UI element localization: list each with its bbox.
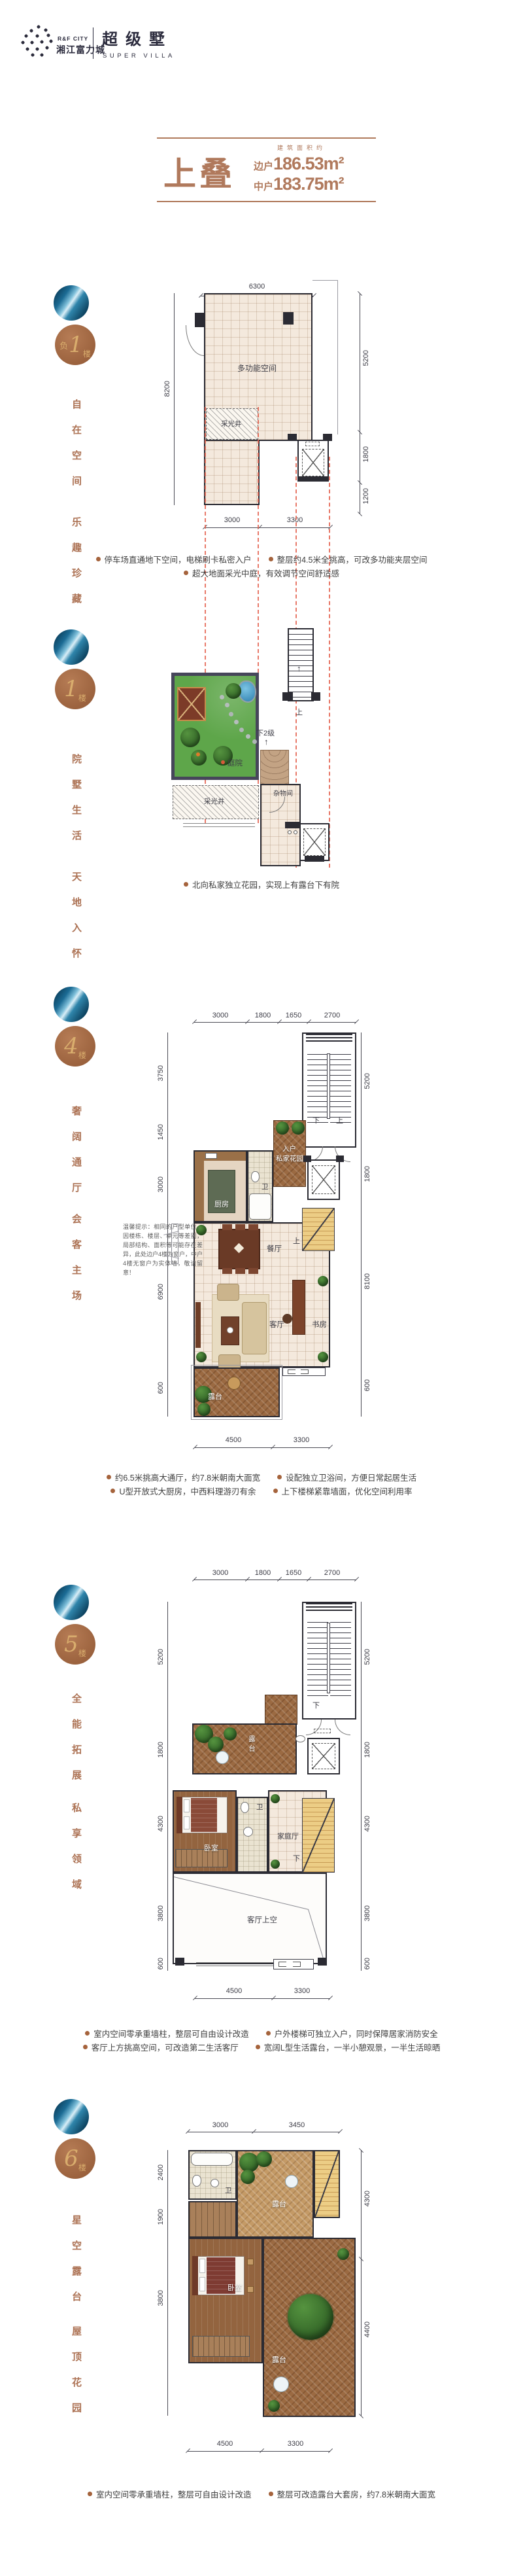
bullet-dot-icon [85, 2031, 90, 2036]
wall-pillar [336, 1156, 344, 1162]
washbasin [211, 2179, 219, 2187]
terrace-plant [256, 2151, 272, 2167]
tv-console [195, 1302, 201, 1348]
wall-pillar [311, 692, 320, 701]
dim-line [194, 1579, 356, 1580]
wardrobe [192, 2336, 250, 2357]
bed-pillow [184, 1799, 190, 1812]
corner-plant [318, 1352, 328, 1362]
dim-line [195, 1998, 330, 1999]
garden-pavilion [177, 687, 206, 721]
feature-bullets-row: 北向私家独立花园，实现上有露台下有院 [0, 878, 523, 891]
feature-bullets-row: 客厅上方挑高空间，可改造第二生活客厅 宽阔L型生活露台，一半小憩观景，一半生活晾… [0, 2041, 523, 2053]
dim-label: 6300 [249, 283, 265, 291]
bed-pillow [199, 2259, 205, 2273]
dim-tick [328, 1996, 333, 2000]
dim-label: 3300 [287, 516, 303, 524]
bed-blanket [191, 1798, 217, 1832]
bullet-text: 宽阔L型生活露台，一半小憩观景，一半生活晾晒 [264, 2041, 440, 2053]
garden-plant [292, 1121, 305, 1135]
dim-label: 3000 [212, 1012, 228, 1019]
corner-plant [196, 1352, 207, 1362]
dim-label: 8200 [163, 381, 171, 397]
bullet-text: 上下楼梯紧靠墙面，优化空间利用率 [282, 1485, 413, 1497]
area-mid-value: 183.75m² [273, 174, 344, 194]
corner-plant [318, 1276, 328, 1286]
dim-line [174, 293, 175, 505]
plan-outline [337, 280, 338, 434]
dim-line [167, 1602, 168, 1971]
bullet-text: 室内空间零承重墙柱，整层可自由设计改造 [93, 2027, 249, 2039]
bullet-text: 约6.5米挑高大通厅，约7.8米朝南大面宽 [115, 1471, 260, 1483]
feature-bullets-row: 停车场直通地下空间，电梯刷卡私密入户 整层约4.5米全挑高，可改多功能夹层空间 [0, 553, 523, 565]
brochure-page: R&F CITY 湘江富力城 超级墅 SUPER VILLA 上叠 建筑面积约 … [0, 0, 523, 2576]
terrace-table [228, 1377, 241, 1390]
floor-badge-number: 1 [64, 678, 78, 700]
dim-line [188, 2451, 330, 2452]
disclaimer-note: 温馨提示：相同的户型单位，因楼栋、楼层、单元等差别，局部结构、面积等可能存在差异… [123, 1222, 203, 1277]
dim-line [361, 2150, 362, 2416]
bullet-dot-icon [269, 2492, 273, 2496]
room-label-storage: 杂物间 [273, 788, 293, 798]
room-label-dining: 餐厅 [267, 1243, 282, 1254]
feature-bullet: 宽阔L型生活露台，一半小憩观景，一半生活晾晒 [256, 2041, 440, 2053]
bed-headboard [192, 2256, 198, 2295]
terrace-l-arm [265, 1695, 297, 1725]
feature-bullet: 上下楼梯紧靠墙面，优化空间利用率 [273, 1485, 413, 1497]
bed-headboard [177, 1797, 182, 1833]
dim-line [167, 2150, 168, 2416]
slogan-f5-a: 全能拓展 [69, 1693, 83, 1795]
dim-label: 3300 [294, 1987, 310, 1995]
area-mid: 中户183.75m² [254, 174, 344, 194]
dim-label: 1800 [255, 1569, 271, 1577]
wall-pillar [175, 1958, 184, 1966]
room-label-foyer-1: 入户 [282, 1144, 296, 1154]
elevator-vent [305, 442, 320, 446]
dim-label: 1450 [157, 1124, 165, 1140]
corridor-closet [188, 2201, 237, 2238]
bathtub [249, 1193, 271, 1220]
bullet-dot-icon [88, 2492, 92, 2496]
bullet-dot-icon [269, 557, 273, 561]
room-label-family: 家庭厅 [277, 1831, 299, 1841]
elevator-vent [314, 1729, 331, 1733]
dim-line [205, 527, 330, 528]
floor-badge-suffix: 楼 [78, 2162, 86, 2173]
kitchen-sink [205, 1153, 217, 1159]
dim-label: 3800 [157, 1905, 165, 1921]
interior-stair [302, 1208, 335, 1251]
window-sill-line [196, 1962, 273, 1963]
area-side-value: 186.53m² [273, 154, 344, 173]
dim-line [188, 2132, 340, 2132]
wall-pillar [318, 1958, 327, 1966]
window-sill-line [183, 823, 255, 824]
bullet-dot-icon [273, 1489, 278, 1493]
corner-plant [271, 1860, 280, 1869]
wall-pillar [283, 312, 294, 325]
room-label-courtyard: 庭院 [228, 758, 243, 768]
area-side: 边户186.53m² [254, 154, 344, 174]
bullet-dot-icon [256, 2045, 260, 2049]
dining-chair [235, 1224, 245, 1230]
stove-burner [294, 830, 297, 834]
dim-label: 600 [157, 1958, 165, 1969]
floor-badge-suffix: 楼 [83, 348, 91, 359]
room-label-bath: 卫 [261, 1182, 269, 1191]
floor-badge-number: 1 [69, 334, 83, 356]
garden-stone-path [220, 695, 224, 699]
dim-label: 3800 [157, 2290, 165, 2306]
slogan-b1-a: 自在空间 [69, 399, 83, 501]
dim-label: 6900 [157, 1284, 165, 1299]
table-lamp [227, 1327, 233, 1333]
dim-tick [328, 1445, 333, 1449]
step-arrow-up: ↑ [264, 737, 269, 747]
dim-label: 2400 [157, 2164, 165, 2180]
room-label-terrace-main: 露台 [272, 2354, 286, 2365]
dim-label: 4300 [363, 2191, 371, 2206]
dim-label: 2700 [324, 1569, 340, 1577]
dim-label: 3450 [289, 2121, 305, 2129]
room-label-terrace-north: 露台 [272, 2198, 286, 2209]
study-chair [282, 1314, 292, 1324]
floor-badge-5: 5 楼 [55, 1624, 95, 1665]
bed-pillow [199, 2277, 205, 2291]
terrace-plant [241, 2170, 255, 2184]
dim-label: 1800 [363, 1166, 371, 1182]
wall-pillar [323, 434, 332, 441]
garden-tree [226, 683, 241, 699]
bullet-text: U型开放式大厨房，中西料理游刃有余 [119, 1485, 256, 1497]
dim-tick [354, 1019, 359, 1024]
bullet-dot-icon [96, 557, 101, 561]
vanity-sink [295, 1735, 305, 1742]
dining-chair [248, 1268, 258, 1274]
toilet [192, 2175, 201, 2187]
floor-badge-b1: 负 1 楼 [55, 325, 95, 365]
dim-tick [354, 1577, 359, 1581]
elevator-car [312, 1165, 335, 1194]
floor-badge-suffix: 楼 [78, 692, 86, 703]
feature-bullet: U型开放式大厨房，中西料理游刃有余 [110, 1485, 256, 1497]
stair-label-down: 下 [312, 1115, 320, 1125]
dim-label: 600 [363, 1379, 371, 1391]
feature-bullets-row: U型开放式大厨房，中西料理游刃有余 上下楼梯紧靠墙面，优化空间利用率 [0, 1485, 523, 1497]
room-label-bath: 卫 [256, 1802, 263, 1812]
dim-label: 3000 [224, 516, 240, 524]
page-title: 上叠 [163, 148, 235, 195]
stair-rail [327, 1623, 330, 1693]
dining-chair [248, 1224, 258, 1230]
terrace-plant [337, 2248, 349, 2260]
dim-label: 3000 [212, 1569, 228, 1577]
feature-bullet: 客厅上方挑高空间，可改造第二生活客厅 [83, 2041, 239, 2053]
dim-tick [312, 293, 316, 298]
terrace-big-tree [288, 2294, 333, 2340]
dim-label: 1650 [286, 1569, 301, 1577]
slogan-f6-a: 星空露台 [69, 2215, 83, 2317]
slogan-f1-a: 院墅生活 [69, 754, 83, 856]
garden-tree [180, 728, 200, 747]
toilet [251, 1171, 260, 1182]
dining-chair [222, 1268, 232, 1274]
room-label-bedroom: 卧室 [228, 2282, 242, 2293]
terrace-plant [224, 1727, 237, 1740]
feature-bullet: 约6.5米挑高大通厅，约7.8米朝南大面宽 [107, 1471, 260, 1483]
dim-label: 5200 [363, 1649, 371, 1665]
slogan-f4-a: 奢阔通厅 [69, 1106, 83, 1208]
dim-line [361, 1602, 362, 1971]
feature-bullet: 室内空间零承重墙柱，整层可自由设计改造 [88, 2488, 252, 2500]
wall-pillar [288, 434, 297, 441]
dining-chair [235, 1268, 245, 1274]
dim-label: 1800 [157, 1742, 165, 1757]
area-side-label: 边户 [254, 161, 273, 172]
floor-badge-number: 6 [64, 2147, 78, 2170]
plan-outline [312, 280, 337, 281]
bullet-text: 超大地面采光中庭，有效调节空间舒适感 [192, 567, 339, 579]
garden-flower [221, 760, 225, 764]
room-multi-function-lower [204, 440, 260, 505]
dim-tick [328, 2448, 333, 2453]
bullet-text: 户外楼梯可独立入户，同时保障居家消防安全 [275, 2027, 438, 2039]
dim-label: 1800 [363, 1742, 371, 1757]
room-label-bedroom: 卧室 [204, 1843, 218, 1853]
slogan-f4-b: 会客主场 [69, 1214, 83, 1316]
window-sill-line [196, 1966, 273, 1966]
feature-bullets-row: 室内空间零承重墙柱，整层可自由设计改造 户外楼梯可独立入户，同时保障居家消防安全 [0, 2027, 523, 2039]
wall-pillar [303, 1156, 311, 1162]
feature-bullet: 室内空间零承重墙柱，整层可自由设计改造 [85, 2027, 249, 2039]
terrace-plant [268, 2400, 280, 2412]
nightstand [247, 2259, 254, 2265]
elevator-car [303, 828, 326, 856]
elevator-sill [305, 856, 324, 862]
stair-flight [307, 1617, 328, 1699]
dim-label: 1200 [362, 488, 370, 504]
stairwell-grill [306, 1034, 352, 1042]
room-label-terrace: 露台 [247, 1735, 257, 1754]
door-arc [335, 1720, 350, 1735]
room-label-terrace: 露台 [208, 1391, 222, 1402]
washbasin [243, 1827, 253, 1837]
feature-bullet: 超大地面采光中庭，有效调节空间舒适感 [184, 567, 339, 579]
logo-sub-en: R&F CITY [58, 35, 88, 42]
garden-plant [276, 1121, 289, 1135]
rf-city-logo-icon [20, 24, 58, 60]
badge-silk-circle [54, 2099, 89, 2134]
dim-label: 4400 [363, 2321, 371, 2337]
bullet-dot-icon [266, 2031, 271, 2036]
floor-badge-prefix: 负 [59, 339, 68, 351]
window-section-mark [278, 1962, 286, 1967]
terrace-plant [197, 1403, 211, 1416]
window-section-mark [288, 1369, 295, 1374]
feature-bullet: 停车场直通地下空间，电梯刷卡私密入户 [96, 553, 252, 565]
stair-label-down: 下 [312, 1700, 320, 1710]
entry-door-arc [186, 325, 204, 356]
dim-label: 600 [363, 1958, 371, 1969]
slogan-f5-b: 私享领域 [69, 1803, 83, 1905]
badge-silk-circle [54, 987, 89, 1022]
dim-label: 1800 [362, 446, 370, 462]
feature-bullet: 户外楼梯可独立入户，同时保障居家消防安全 [266, 2027, 438, 2039]
stair-label-down: 下 [293, 1853, 300, 1863]
feature-bullet: 整层约4.5米全挑高，可改多功能夹层空间 [269, 553, 428, 565]
area-mid-label: 中户 [254, 181, 273, 192]
dim-line [194, 1022, 356, 1023]
dim-label: 1650 [286, 1012, 301, 1019]
dim-line [361, 1032, 362, 1417]
bullet-text: 北向私家独立花园，实现上有露台下有院 [192, 878, 339, 891]
interior-stair [302, 1798, 335, 1873]
room-label-light-well: 采光井 [204, 796, 225, 806]
room-label-foyer-2: 私家花园 [276, 1154, 303, 1163]
floor-badge-4: 4 楼 [55, 1026, 95, 1067]
dim-label: 5200 [157, 1649, 165, 1665]
bullet-dot-icon [184, 571, 188, 575]
room-label-living: 客厅 [269, 1319, 284, 1330]
product-name-en: SUPER VILLA [103, 52, 175, 60]
kitchen-counter [195, 1152, 204, 1221]
terrace-plant [208, 1737, 224, 1752]
terrace-table [273, 2376, 289, 2392]
dim-line [195, 1447, 330, 1448]
toilet [241, 1802, 249, 1813]
feature-bullet: 设配独立卫浴间，方便日常起居生活 [277, 1471, 416, 1483]
wardrobe [175, 1849, 228, 1867]
window-section-mark [293, 1962, 301, 1967]
dim-label: 4500 [226, 1436, 241, 1444]
dim-label: 3300 [294, 1436, 309, 1444]
armchair [217, 1284, 239, 1301]
room-label-multi-function: 多功能空间 [237, 362, 277, 374]
feature-bullets-row: 约6.5米挑高大通厅，约7.8米朝南大面宽 设配独立卫浴间，方便日常起居生活 [0, 1471, 523, 1483]
dim-label: 3000 [157, 1176, 165, 1192]
bullet-text: 客厅上方挑高空间，可改造第二生活客厅 [92, 2041, 239, 2053]
interior-stair [314, 2150, 340, 2218]
dim-label: 4300 [157, 1816, 165, 1831]
wall-pillar [282, 692, 293, 701]
entry-paving [260, 750, 289, 785]
room-label-study: 书房 [312, 1319, 327, 1330]
elevator-car [312, 1743, 335, 1769]
bullet-text: 室内空间零承重墙柱，整层可自由设计改造 [96, 2488, 252, 2500]
badge-silk-circle [54, 1585, 89, 1620]
bullet-text: 设配独立卫浴间，方便日常起居生活 [286, 1471, 416, 1483]
logo-cn: 湘江富力城 [56, 43, 105, 56]
dim-tick [338, 2129, 343, 2134]
bullet-dot-icon [184, 882, 188, 887]
floor-badge-1: 1 楼 [55, 669, 95, 709]
stove-burner [288, 830, 292, 834]
dim-label: 600 [157, 1382, 165, 1394]
kitchen-appliance [285, 822, 301, 828]
dim-label: 3000 [212, 2121, 228, 2129]
room-label-bath: 卫 [225, 2185, 232, 2195]
dim-label: 3300 [288, 2440, 303, 2448]
room-label-light-well: 采光井 [221, 419, 242, 429]
bullet-text: 停车场直通地下空间，电梯刷卡私密入户 [105, 553, 252, 565]
stair-label-up: 上 [295, 707, 303, 717]
terrace-table [216, 1751, 229, 1764]
stair-arrow-up: ↑ [297, 663, 301, 673]
floor-badge-number: 5 [64, 1633, 78, 1655]
window-section-mark [301, 1369, 309, 1374]
dim-label: 2700 [324, 1012, 340, 1019]
stairwell-grill [306, 1603, 352, 1611]
header-divider [93, 27, 93, 59]
stair-label-up: 上 [336, 1115, 343, 1125]
room-label-kitchen: 厨房 [214, 1199, 229, 1209]
badge-silk-circle [54, 629, 89, 665]
corner-plant [271, 1794, 280, 1803]
alignment-dash-line [329, 457, 330, 868]
badge-silk-circle [54, 285, 89, 321]
bed-pillow [184, 1816, 190, 1829]
bathtub [191, 2153, 233, 2166]
dim-label: 1900 [157, 2209, 165, 2225]
dim-line [360, 293, 360, 514]
bullet-dot-icon [83, 2045, 88, 2049]
room-label-void: 客厅上空 [247, 1914, 277, 1925]
stair-flight [330, 1617, 351, 1699]
sofa [242, 1302, 267, 1354]
dining-chair [222, 1224, 232, 1230]
nightstand [247, 2286, 254, 2293]
feature-bullet: 北向私家独立花园，实现上有露台下有院 [184, 878, 339, 891]
bullet-text: 整层可改造露台大套房，约7.8米朝南大面宽 [277, 2488, 435, 2500]
terrace-table [285, 2175, 298, 2188]
elevator-car [302, 449, 324, 476]
floor-badge-number: 4 [64, 1035, 78, 1057]
product-name-cn: 超级墅 [102, 26, 173, 49]
stair-rail [327, 1053, 330, 1119]
title-rule-bottom [157, 201, 376, 202]
dim-label: 1800 [255, 1012, 271, 1019]
bullet-dot-icon [277, 1475, 282, 1479]
bullet-dot-icon [110, 1489, 115, 1493]
dim-label: 4500 [217, 2440, 233, 2448]
dim-label: 3750 [157, 1065, 165, 1081]
feature-bullet: 整层可改造露台大套房，约7.8米朝南大面宽 [269, 2488, 435, 2500]
elevator-sill [299, 476, 328, 482]
dim-label: 5200 [363, 1073, 371, 1089]
dim-label: 3800 [363, 1905, 371, 1921]
dim-label: 5200 [362, 350, 370, 366]
bullet-text: 整层约4.5米全挑高，可改多功能夹层空间 [277, 553, 428, 565]
floor-badge-suffix: 楼 [78, 1050, 86, 1061]
feature-bullets-row: 超大地面采光中庭，有效调节空间舒适感 [0, 567, 523, 579]
bullet-dot-icon [107, 1475, 111, 1479]
floor-badge-suffix: 楼 [78, 1648, 86, 1659]
dim-label: 8100 [363, 1273, 371, 1289]
garden-flower [196, 752, 200, 756]
stair-label-up: 上 [293, 1235, 300, 1246]
study-desk [292, 1280, 305, 1335]
slogan-f6-b: 屋顶花园 [69, 2326, 83, 2428]
dim-label: 4300 [363, 1816, 371, 1831]
window-sill-line [183, 826, 255, 827]
floor-badge-6: 6 楼 [55, 2138, 95, 2179]
feature-bullets-row: 室内空间零承重墙柱，整层可自由设计改造 整层可改造露台大套房，约7.8米朝南大面… [0, 2488, 523, 2500]
area-note: 建筑面积约 [277, 143, 326, 152]
title-rule-top [157, 137, 376, 139]
dim-label: 4500 [226, 1987, 242, 1995]
